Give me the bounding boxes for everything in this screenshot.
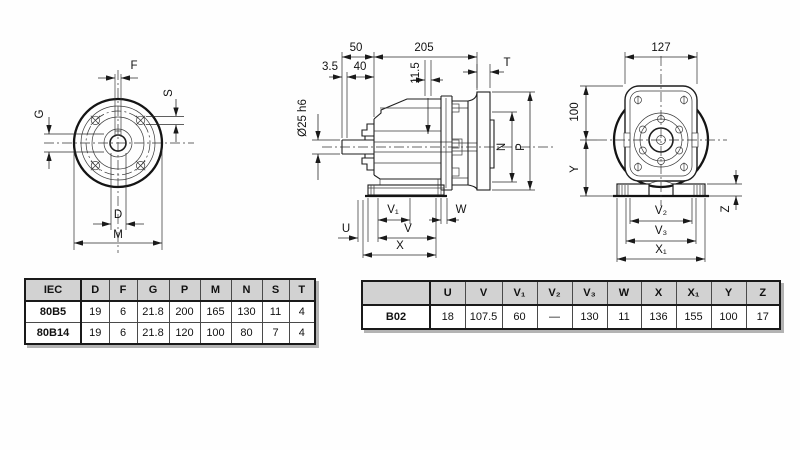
dim-label-f: F xyxy=(130,60,137,72)
dim-label-m: M xyxy=(113,229,123,241)
b02-header-row: U V V₁ V₂ V₃ W X X₁ Y Z xyxy=(362,281,780,305)
table-cell: 80 xyxy=(231,323,262,345)
table-row: 80B14 19 6 21.8 120 100 80 7 4 xyxy=(25,323,315,345)
table-cell: 11 xyxy=(607,305,641,329)
col-header: W xyxy=(607,281,641,305)
col-header: G xyxy=(137,279,169,301)
row-header: B02 xyxy=(362,305,430,329)
col-header: F xyxy=(109,279,137,301)
table-cell: 18 xyxy=(430,305,465,329)
col-header: V₂ xyxy=(537,281,572,305)
col-header: Y xyxy=(711,281,746,305)
col-header: T xyxy=(289,279,315,301)
table-cell: 21.8 xyxy=(137,323,169,345)
row-header: 80B5 xyxy=(25,301,81,323)
table-cell: 100 xyxy=(711,305,746,329)
table-cell: 7 xyxy=(262,323,289,345)
col-header: U xyxy=(430,281,465,305)
table-cell: 11 xyxy=(262,301,289,323)
col-header: IEC xyxy=(25,279,81,301)
table-cell: 100 xyxy=(200,323,231,345)
side-view: 50 205 3.5 40 11.5 T Ø25 h6 N P xyxy=(297,42,556,258)
col-header: D xyxy=(81,279,109,301)
front-flange-view: F S G D M xyxy=(34,60,194,253)
table-cell: 60 xyxy=(502,305,537,329)
technical-drawing: F S G D M xyxy=(0,0,800,272)
dim-label-40: 40 xyxy=(354,61,367,73)
dim-label-n: N xyxy=(496,143,508,151)
dim-label-v2: V₂ xyxy=(655,205,667,217)
dim-label-t: T xyxy=(503,57,510,69)
dim-label-205: 205 xyxy=(414,42,433,54)
dim-label-50: 50 xyxy=(350,42,363,54)
dim-label-100: 100 xyxy=(569,102,581,121)
table-cell: 130 xyxy=(231,301,262,323)
iec-header-row: IEC D F G P M N S T xyxy=(25,279,315,301)
row-header: 80B14 xyxy=(25,323,81,345)
table-cell: 200 xyxy=(169,301,200,323)
table-cell: 17 xyxy=(746,305,780,329)
col-header: S xyxy=(262,279,289,301)
table-cell: 4 xyxy=(289,323,315,345)
dim-label-v3: V₃ xyxy=(655,225,668,237)
dim-label-y: Y xyxy=(569,165,581,173)
col-header: X₁ xyxy=(676,281,711,305)
dim-label-w: W xyxy=(456,204,467,216)
col-header: V₃ xyxy=(572,281,607,305)
table-cell: 6 xyxy=(109,301,137,323)
table-row: 80B5 19 6 21.8 200 165 130 11 4 xyxy=(25,301,315,323)
table-cell: 136 xyxy=(641,305,676,329)
table-cell: — xyxy=(537,305,572,329)
dim-label-z: Z xyxy=(720,205,732,212)
table-cell: 165 xyxy=(200,301,231,323)
dim-label-v: V xyxy=(404,223,412,235)
table-row: B02 18 107.5 60 — 130 11 136 155 100 17 xyxy=(362,305,780,329)
table-cell: 6 xyxy=(109,323,137,345)
col-header: Z xyxy=(746,281,780,305)
table-cell: 130 xyxy=(572,305,607,329)
col-header: M xyxy=(200,279,231,301)
dim-label-v1: V₁ xyxy=(387,204,399,216)
col-header: X xyxy=(641,281,676,305)
dim-label-g: G xyxy=(34,109,46,118)
dim-label-u: U xyxy=(342,223,350,235)
table-cell: 19 xyxy=(81,301,109,323)
table-cell: 120 xyxy=(169,323,200,345)
dim-label-s: S xyxy=(163,89,175,97)
table-cell: 155 xyxy=(676,305,711,329)
dim-label-d: D xyxy=(114,209,122,221)
col-header: P xyxy=(169,279,200,301)
iec-dimension-table: IEC D F G P M N S T 80B5 19 6 21.8 200 1… xyxy=(24,278,316,345)
dim-label-x: X xyxy=(396,240,404,252)
col-header: V xyxy=(465,281,502,305)
dim-label-x1: X₁ xyxy=(655,244,667,256)
b02-dimension-table: U V V₁ V₂ V₃ W X X₁ Y Z B02 18 107.5 60 … xyxy=(361,280,781,330)
dim-label-3-5: 3.5 xyxy=(322,61,338,73)
dim-label-11-5: 11.5 xyxy=(410,62,422,84)
dim-label-p: P xyxy=(515,143,527,151)
col-header xyxy=(362,281,430,305)
col-header: N xyxy=(231,279,262,301)
table-cell: 19 xyxy=(81,323,109,345)
gearbox-dimension-sheet: F S G D M xyxy=(0,0,800,450)
col-header: V₁ xyxy=(502,281,537,305)
dim-label-127: 127 xyxy=(651,42,670,54)
dim-label-shaft-dia: Ø25 h6 xyxy=(297,99,309,137)
table-cell: 4 xyxy=(289,301,315,323)
table-cell: 107.5 xyxy=(465,305,502,329)
table-cell: 21.8 xyxy=(137,301,169,323)
rear-view: 127 100 Y Z V₂ V₃ X₁ xyxy=(569,42,742,262)
